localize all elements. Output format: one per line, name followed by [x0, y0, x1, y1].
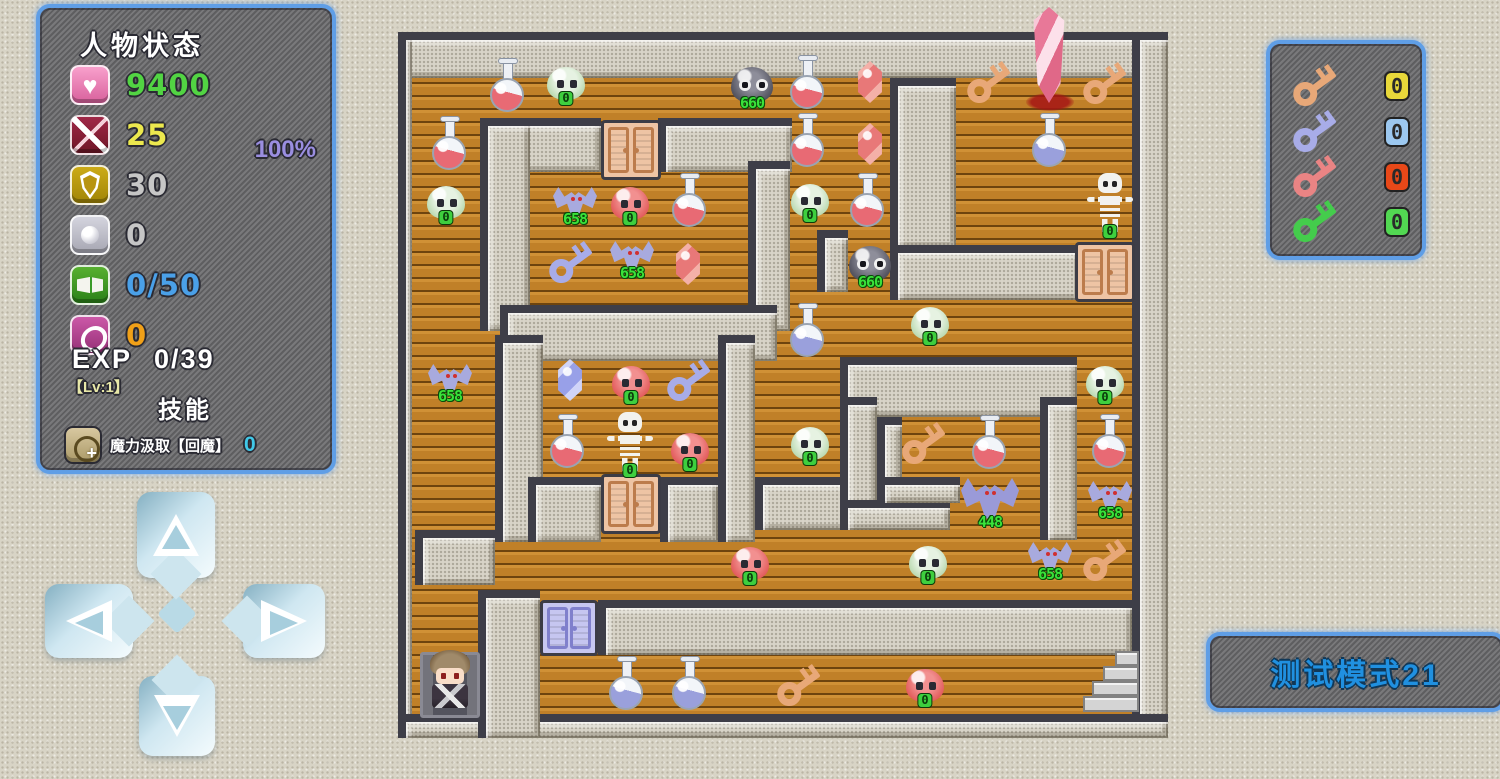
monster-value: 0	[622, 211, 637, 226]
dpad-down-button[interactable]	[139, 676, 215, 756]
dpad	[0, 460, 340, 770]
wall	[598, 600, 1132, 655]
door-orange	[601, 474, 661, 534]
stairs	[1081, 649, 1139, 715]
door-orange	[601, 120, 661, 180]
left-arrow-icon	[66, 600, 112, 642]
exp-value: 0/39	[154, 344, 215, 375]
up-arrow-icon	[153, 514, 199, 556]
book-value: 0/50	[126, 268, 201, 302]
skill-name: 魔力汲取【回魔】	[110, 435, 230, 456]
wall	[528, 477, 601, 542]
hp-row: 9400	[70, 64, 211, 106]
skill-row[interactable]: 魔力汲取【回魔】 0	[64, 426, 256, 464]
skills-title: 技能	[158, 390, 212, 425]
key-row: 0	[1286, 202, 1410, 242]
game-screen: { "colors": { "panel_border": "#5f9ee6",…	[0, 0, 1500, 779]
potion-red	[672, 173, 708, 227]
wall	[1132, 32, 1168, 738]
skill-value: 0	[244, 433, 256, 457]
key-row: 0	[1286, 112, 1410, 152]
wall	[480, 118, 530, 331]
wall	[877, 477, 960, 503]
monster-value: 0	[1097, 390, 1112, 405]
hp-value: 9400	[126, 68, 211, 102]
orb-row: 0	[70, 214, 147, 256]
orange-key-icon	[1286, 68, 1348, 104]
potion-blue	[1032, 113, 1068, 167]
wall	[478, 590, 540, 738]
dpad-up-button[interactable]	[137, 492, 215, 578]
monster-value: 658	[438, 387, 462, 405]
exp-row: EXP 0/39	[72, 344, 215, 375]
wall	[890, 78, 956, 248]
potion-blue	[672, 656, 708, 710]
monster-value: 658	[563, 210, 587, 228]
door-orange	[1075, 242, 1135, 302]
status-panel-title: 人物状态	[80, 24, 204, 63]
potion-red	[972, 415, 1008, 469]
green-key-count: 0	[1384, 207, 1410, 237]
exp-label: EXP	[72, 344, 132, 375]
defense-value: 30	[126, 168, 168, 202]
monster-value: 0	[1102, 224, 1117, 239]
potion-red	[790, 55, 826, 109]
door-blue	[540, 600, 598, 656]
monster-value: 660	[740, 94, 764, 112]
wall	[415, 530, 495, 585]
shield-icon	[70, 165, 110, 205]
attack-value: 25	[126, 118, 168, 152]
monster-value: 0	[802, 208, 817, 223]
skill-icon	[64, 426, 102, 464]
monster-value: 0	[742, 571, 757, 586]
wall	[1040, 397, 1077, 540]
monster-value: 660	[858, 273, 882, 291]
test-mode-panel: 测试模式21	[1206, 632, 1500, 712]
key-row: 0	[1286, 157, 1410, 197]
monster-value: 0	[802, 451, 817, 466]
keys-panel: 0 0 0 0	[1266, 40, 1426, 260]
red-key-count: 0	[1384, 162, 1410, 192]
monster-value: 0	[682, 457, 697, 472]
defense-row: 30	[70, 164, 168, 206]
dpad-left-button[interactable]	[45, 584, 133, 658]
green-key-icon	[1286, 204, 1348, 240]
dpad-center	[157, 594, 197, 634]
monster-value: 0	[922, 331, 937, 346]
orb-icon	[70, 215, 110, 255]
potion-red	[432, 116, 468, 170]
potion-blue	[609, 656, 645, 710]
heart-icon	[70, 65, 110, 105]
maze-map: 00000000000066066065865865865865844800	[398, 22, 1168, 738]
monster-value: 0	[920, 570, 935, 585]
book-row: 0/50	[70, 264, 201, 306]
wall	[398, 32, 412, 738]
attack-row: 25	[70, 114, 168, 156]
dpad-right-button[interactable]	[243, 584, 325, 658]
orange-key-count: 0	[1384, 71, 1410, 101]
monster-value: 0	[917, 693, 932, 708]
blue-key-count: 0	[1384, 117, 1410, 147]
right-arrow-icon	[261, 600, 307, 642]
hit-rate-value: 100%	[255, 136, 316, 164]
monster-value: 658	[620, 264, 644, 282]
wall	[660, 477, 718, 542]
level-label: 【Lv:1】	[68, 376, 129, 397]
orb-value: 0	[126, 218, 147, 252]
potion-red	[790, 113, 826, 167]
potion-red	[1092, 414, 1128, 468]
monster-value: 658	[1098, 504, 1122, 522]
test-mode-label: 测试模式21	[1270, 650, 1441, 694]
book-icon	[70, 265, 110, 305]
down-arrow-icon	[154, 695, 200, 737]
potion-blue	[790, 303, 826, 357]
wall	[890, 245, 1080, 300]
potion-red	[490, 58, 526, 112]
blue-key-icon	[1286, 114, 1348, 150]
monster-value: 0	[623, 390, 638, 405]
wall	[817, 230, 848, 292]
monster-value: 0	[438, 210, 453, 225]
status-panel: 人物状态 9400 25 30 0 0/50 0 100% EXP 0/39 【…	[36, 4, 336, 474]
sword-icon	[70, 115, 110, 155]
monster-value: 658	[1038, 565, 1062, 583]
wall	[840, 500, 950, 530]
hero	[423, 650, 477, 712]
monster-value: 448	[978, 513, 1002, 531]
potion-red	[850, 173, 886, 227]
potion-red	[550, 414, 586, 468]
red-key-icon	[1286, 159, 1348, 195]
key-row: 0	[1286, 66, 1410, 106]
wall	[718, 335, 755, 542]
monster-value: 0	[622, 463, 637, 478]
monster-value: 0	[558, 91, 573, 106]
